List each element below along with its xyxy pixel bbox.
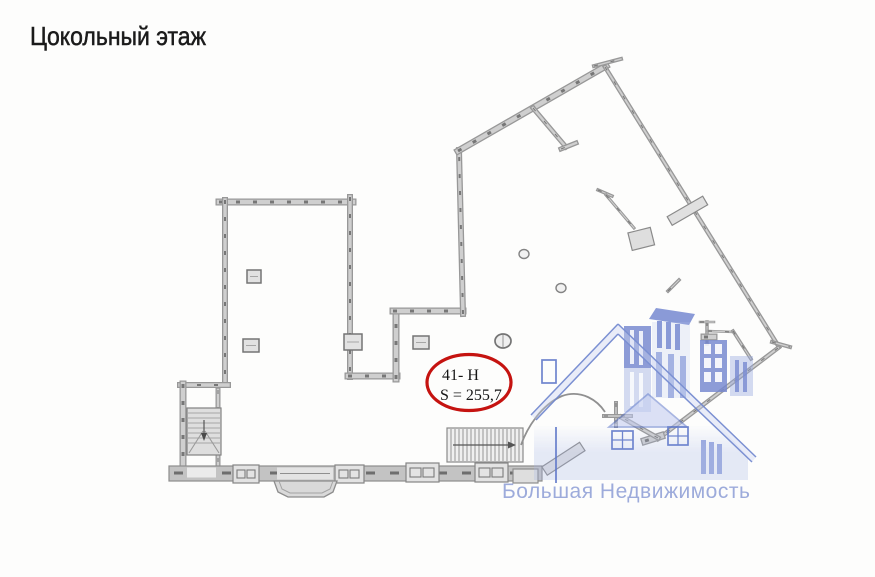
svg-text:Цокольный этаж: Цокольный этаж (30, 21, 207, 51)
svg-text:Большая Недвижимость: Большая Недвижимость (502, 480, 751, 503)
svg-text:S = 255,7: S = 255,7 (440, 387, 502, 404)
svg-text:41- Н: 41- Н (442, 367, 479, 384)
